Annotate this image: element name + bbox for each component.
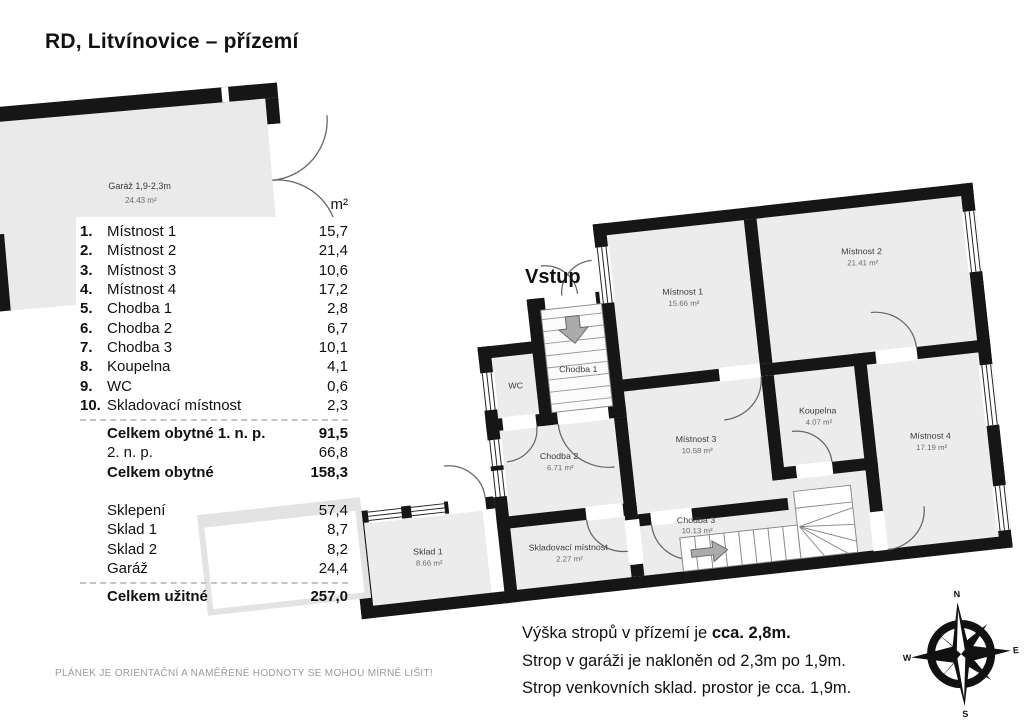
compass-w: W: [903, 653, 913, 664]
row-label: Místnost 1: [107, 223, 319, 240]
room-mistnost-2: [757, 196, 978, 363]
compass-e: E: [1013, 645, 1020, 655]
legend-unit-header: m²: [80, 196, 348, 222]
row-label: Celkem užitné: [107, 588, 310, 605]
room-area-chodba-2: 6.71 m²: [547, 463, 574, 472]
compass-n: N: [953, 589, 960, 599]
door-arc: [444, 462, 485, 501]
row-label: Sklad 2: [107, 541, 327, 558]
row-value: 66,8: [319, 444, 348, 461]
row-value: 8,7: [327, 521, 348, 538]
window: [487, 439, 505, 467]
floorplan-page: { "title": "RD, Litvínovice – přízemí", …: [0, 0, 1024, 724]
legend-row: 6.Chodba 26,7: [80, 318, 348, 337]
room-sklad-1: [364, 510, 492, 606]
legend-row: 8.Koupelna4,1: [80, 357, 348, 376]
room-label-mistnost-3: Místnost 3: [676, 434, 717, 444]
ground-floor-plan: Chodba 1 Místnost 1 15.66 m² Místnost 2 …: [316, 131, 1015, 640]
floorplan-drawing: Chodba 1 Místnost 1 15.66 m² Místnost 2 …: [316, 131, 1015, 640]
row-value: 4,1: [327, 358, 348, 375]
row-value: 257,0: [310, 588, 348, 605]
legend-row: 5.Chodba 12,8: [80, 299, 348, 318]
row-number: 1.: [80, 223, 107, 240]
row-number: 2.: [80, 242, 107, 259]
row-value: 0,6: [327, 378, 348, 395]
legend-row: 7.Chodba 310,1: [80, 338, 348, 357]
row-value: 17,2: [319, 281, 348, 298]
room-label-mistnost-2: Místnost 2: [841, 246, 882, 256]
entrance-staircase: Chodba 1: [541, 304, 613, 413]
ceiling-notes: Výška stropů v přízemí je cca. 2,8m. Str…: [522, 620, 851, 703]
row-label: WC: [107, 378, 327, 395]
room-label-chodba-1: Chodba 1: [559, 364, 598, 374]
row-value: 8,2: [327, 541, 348, 558]
row-label: Chodba 2: [107, 320, 327, 337]
legend-extra-row: Sklepení57,4: [80, 501, 348, 520]
room-koupelna: [774, 366, 864, 467]
note-line-1: Výška stropů v přízemí je cca. 2,8m.: [522, 620, 851, 648]
row-label: 2. n. p.: [107, 444, 319, 461]
page-title: RD, Litvínovice – přízemí: [45, 30, 299, 54]
legend-row: 1.Místnost 115,7: [80, 222, 348, 241]
legend-extra-row: Garáž24,4: [80, 559, 348, 578]
row-label: Místnost 3: [107, 262, 319, 279]
row-label: Místnost 4: [107, 281, 319, 298]
row-label: Místnost 2: [107, 242, 319, 259]
room-skladovaci-mistnost: [510, 516, 631, 590]
garage-wall-gap: [221, 87, 229, 103]
row-label: Chodba 1: [107, 300, 327, 317]
entrance-label: Vstup: [525, 266, 581, 289]
legend-row: 2.Místnost 221,4: [80, 241, 348, 260]
room-area-mistnost-4: 17.19 m²: [916, 443, 948, 452]
disclaimer-text: PLÁNEK JE ORIENTAČNÍ A NAMĚŘENÉ HODNOTY …: [55, 668, 433, 679]
room-area-koupelna: 4.07 m²: [806, 418, 833, 427]
row-number: 7.: [80, 339, 107, 356]
room-area-skladovaci: 2.27 m²: [556, 555, 583, 564]
row-label: Sklad 1: [107, 521, 327, 538]
row-value: 6,7: [327, 320, 348, 337]
room-label-skladovaci: Skladovací místnost: [529, 542, 609, 552]
room-label-mistnost-4: Místnost 4: [910, 431, 951, 441]
room-label-sklad-1: Sklad 1: [413, 547, 443, 557]
row-number: 6.: [80, 320, 107, 337]
legend-total-row: Celkem užitné257,0: [80, 587, 348, 606]
row-label: Koupelna: [107, 358, 327, 375]
room-area-chodba-3: 10.13 m²: [682, 526, 714, 535]
note-bold-text: cca. 2,8m.: [712, 624, 791, 642]
legend-row: 10.Skladovací místnost2,3: [80, 396, 348, 415]
row-number: 8.: [80, 358, 107, 375]
note-line-2: Strop v garáži je nakloněn od 2,3m po 1,…: [522, 648, 851, 676]
room-label-wc: WC: [508, 381, 523, 391]
legend-spacer: [80, 482, 348, 501]
room-area-mistnost-2: 21.41 m²: [847, 258, 879, 267]
row-number: 3.: [80, 262, 107, 279]
row-value: 15,7: [319, 223, 348, 240]
legend-extra-row: Sklad 18,7: [80, 520, 348, 539]
room-area-mistnost-1: 15.66 m²: [668, 299, 700, 308]
row-value: 24,4: [319, 560, 348, 577]
room-area-mistnost-3: 10.58 m²: [682, 446, 714, 455]
row-value: 10,6: [319, 262, 348, 279]
row-label: Sklepení: [107, 502, 319, 519]
garage-label: Garáž 1,9-2,3m: [108, 181, 171, 191]
legend-row: 4.Místnost 417,2: [80, 280, 348, 299]
row-value: 158,3: [310, 464, 348, 481]
row-label: Garáž: [107, 560, 319, 577]
legend-row: 3.Místnost 310,6: [80, 261, 348, 280]
note-text: Výška stropů v přízemí je: [522, 624, 712, 642]
row-number: 9.: [80, 378, 107, 395]
legend-subtotal-row: 2. n. p.66,8: [80, 443, 348, 462]
row-value: 91,5: [319, 425, 348, 442]
room-area-sklad-1: 8.66 m²: [416, 559, 443, 568]
room-label-koupelna: Koupelna: [799, 406, 837, 416]
compass-cardinal-star: [908, 599, 1015, 710]
room-label-mistnost-1: Místnost 1: [662, 287, 703, 297]
row-value: 21,4: [319, 242, 348, 259]
window: [490, 470, 508, 498]
legend-subtotal-row: Celkem obytné 1. n. p.91,5: [80, 424, 348, 443]
row-value: 2,3: [327, 397, 348, 414]
room-label-chodba-3: Chodba 3: [677, 515, 716, 525]
row-number: 5.: [80, 300, 107, 317]
legend-separator: [80, 582, 348, 584]
row-value: 2,8: [327, 300, 348, 317]
row-number: 4.: [80, 281, 107, 298]
row-value: 57,4: [319, 502, 348, 519]
room-label-chodba-2: Chodba 2: [540, 451, 579, 461]
compass-rose-icon: N S E W: [899, 584, 1024, 722]
area-legend: m² 1.Místnost 115,7 2.Místnost 221,4 3.M…: [80, 196, 348, 606]
note-line-3: Strop venkovních sklad. prostor je cca. …: [522, 675, 851, 703]
row-number: 10.: [80, 397, 107, 414]
row-label: Chodba 3: [107, 339, 319, 356]
legend-separator: [80, 419, 348, 421]
row-label: Skladovací místnost: [107, 397, 327, 414]
compass-s: S: [962, 709, 969, 719]
legend-extra-row: Sklad 28,2: [80, 539, 348, 558]
row-label: Celkem obytné: [107, 464, 310, 481]
row-label: Celkem obytné 1. n. p.: [107, 425, 319, 442]
legend-subtotal-row: Celkem obytné158,3: [80, 463, 348, 482]
row-value: 10,1: [319, 339, 348, 356]
room-floors: [336, 196, 999, 606]
legend-row: 9.WC0,6: [80, 376, 348, 395]
